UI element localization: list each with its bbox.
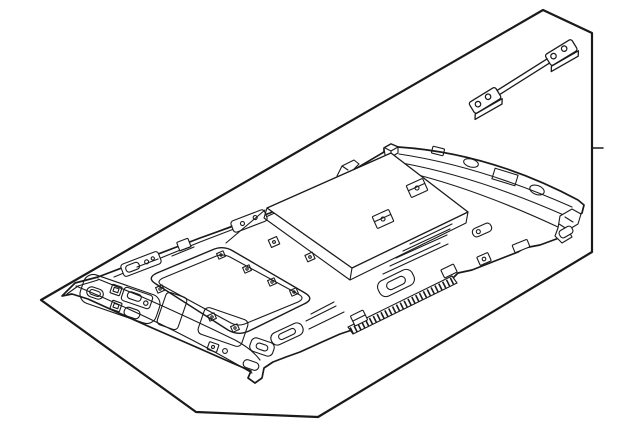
roof-bow-strap [465, 39, 581, 120]
strap-plate [545, 39, 578, 66]
parts-diagram-canvas [0, 0, 640, 429]
bolt-hole [550, 52, 557, 59]
strap-bar [497, 59, 550, 95]
headliner-parts-illustration [0, 0, 640, 429]
bolt-hole [474, 100, 481, 107]
bolt-hole [560, 45, 567, 52]
bolt-hole [484, 93, 491, 100]
headliner-panel [62, 144, 584, 383]
